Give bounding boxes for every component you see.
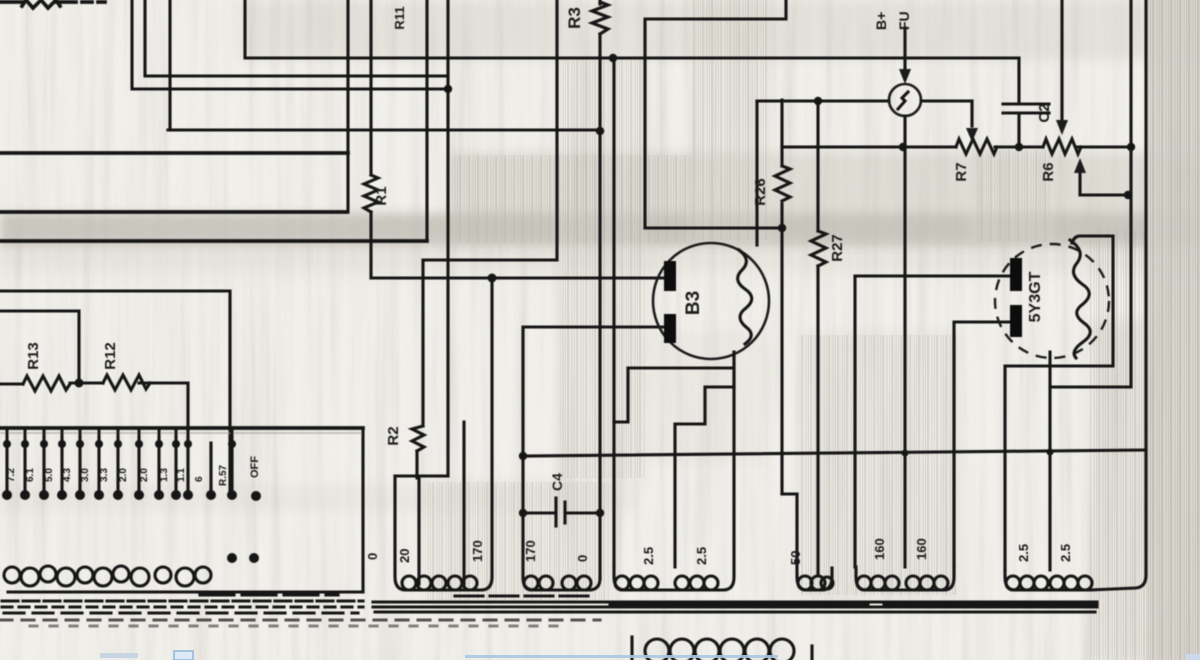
svg-text:1.3: 1.3 [159,468,170,482]
svg-text:170: 170 [470,540,485,562]
svg-text:2.5: 2.5 [1016,544,1031,562]
svg-text:R11: R11 [392,6,407,29]
svg-text:1.1: 1.1 [176,468,187,482]
svg-text:5Y3GT: 5Y3GT [1027,271,1044,322]
svg-text:C4: C4 [549,473,565,491]
svg-text:B+: B+ [873,12,889,30]
svg-text:7.2: 7.2 [6,468,17,482]
svg-text:R3: R3 [565,7,584,29]
svg-text:4.3: 4.3 [62,468,73,482]
svg-text:0: 0 [365,553,380,560]
svg-text:R7: R7 [953,162,970,181]
svg-text:FU: FU [896,11,912,30]
svg-text:R12: R12 [102,342,119,370]
svg-text:5.0: 5.0 [44,468,55,482]
svg-text:6: 6 [194,476,205,482]
svg-text:R27: R27 [829,234,846,262]
svg-text:170: 170 [523,540,538,562]
svg-text:R26: R26 [752,178,769,206]
svg-text:2.5: 2.5 [1058,544,1073,562]
svg-text:R13: R13 [25,342,42,370]
svg-text:160: 160 [914,538,929,560]
svg-text:R1: R1 [373,186,390,205]
svg-text:2.0: 2.0 [118,468,129,482]
svg-text:6.1: 6.1 [25,468,36,482]
svg-text:B3: B3 [683,291,704,315]
svg-text:3.0: 3.0 [80,468,91,482]
svg-text:20: 20 [397,549,412,563]
svg-text:160: 160 [872,538,887,560]
svg-text:OFF: OFF [249,456,261,478]
svg-text:2.0: 2.0 [139,468,150,482]
svg-text:3.3: 3.3 [99,468,110,482]
svg-text:C2: C2 [1036,103,1053,122]
svg-text:50: 50 [788,551,803,565]
svg-text:R.57: R.57 [218,464,229,486]
svg-text:R6: R6 [1040,162,1057,181]
svg-text:2.5: 2.5 [641,547,656,565]
svg-text:2.5: 2.5 [694,547,709,565]
svg-text:R2: R2 [385,426,402,445]
svg-text:0: 0 [575,555,590,562]
